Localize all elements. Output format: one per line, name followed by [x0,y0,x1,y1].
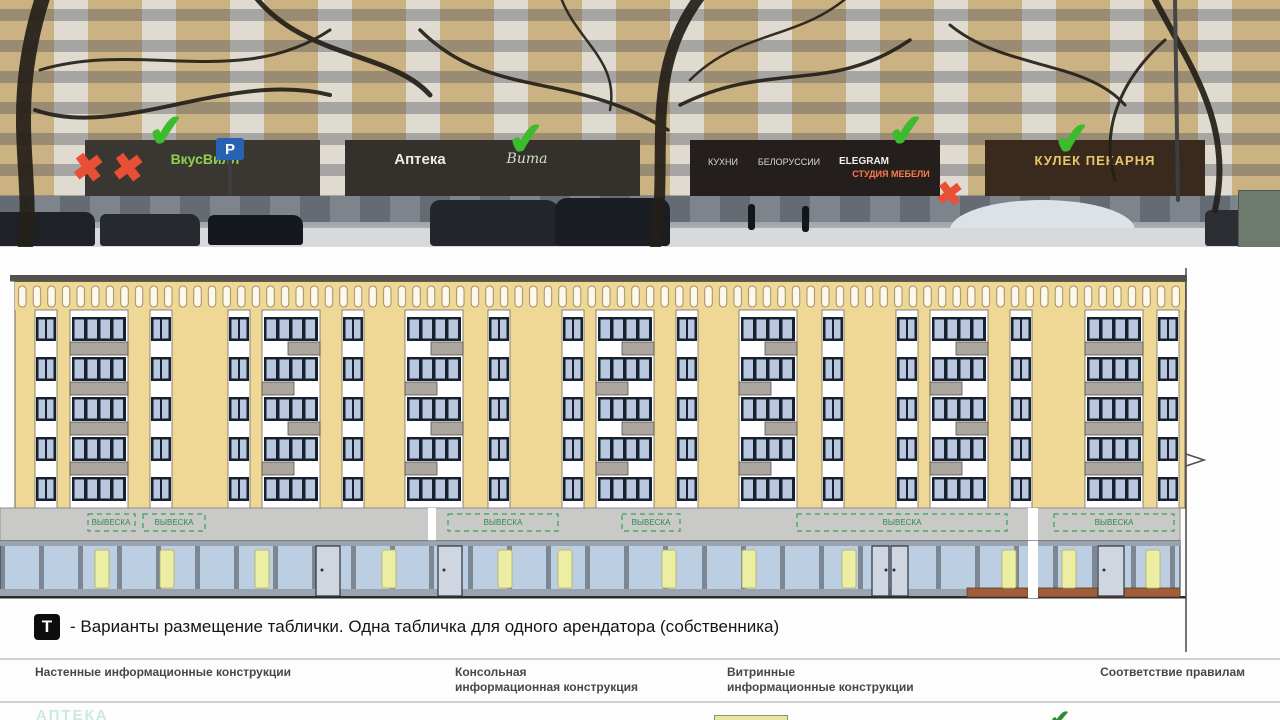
building-elevation-drawing: ВЫВЕСКА ВЫВЕСКА ВЫВЕСКА ВЫВЕСКА ВЫВЕСКА … [0,262,1280,654]
cross-icon: ✖ [70,148,107,190]
footer-col-vitrine-signs: Витринные информационные конструкции [727,665,914,695]
sign-zone-label: ВЫВЕСКА [883,518,923,527]
footer-col-label: Консольная [455,665,638,680]
legend-text: - Варианты размещение таблички. Одна таб… [70,614,779,640]
check-icon: ✔ [1052,116,1093,164]
sign-zone-label: ВЫВЕСКА [632,518,672,527]
check-icon: ✔ [886,108,927,156]
cross-icon: ✖ [110,148,147,190]
partial-sign-example: АПТЕКА [36,707,109,720]
footer-col-console-sign: Консольная информационная конструкция [455,665,638,695]
partial-sign-swatch [714,715,788,720]
sign-zone-label: ВЫВЕСКА [1095,518,1135,527]
footer-col-label-line2: информационная конструкция [455,680,638,695]
footer-col-compliance: Соответствие правилам [1045,665,1245,680]
sign-zone-label: ВЫВЕСКА [92,518,132,527]
street-photo: ВкусВилл Аптека Вита КУХНИ БЕЛОРУССИИ EL… [0,0,1280,247]
partial-check-icon: ✔ [1050,705,1070,720]
footer-col-wall-signs: Настенные информационные конструкции [35,665,291,680]
check-icon: ✔ [146,108,187,156]
footer-col-label-line2: информационные конструкции [727,680,914,695]
footer-col-label: Витринные [727,665,914,680]
footer-col-label: Соответствие правилам [1045,665,1245,680]
divider-top [0,658,1280,660]
footer-col-label: Настенные информационные конструкции [35,665,291,680]
sign-zone-label: ВЫВЕСКА [155,518,195,527]
divider-bottom [0,701,1280,703]
tablet-marker-icon: Т [34,614,60,640]
cross-icon: ✖ [934,176,965,211]
sign-zone-label: ВЫВЕСКА [484,518,524,527]
check-icon: ✔ [506,116,547,164]
